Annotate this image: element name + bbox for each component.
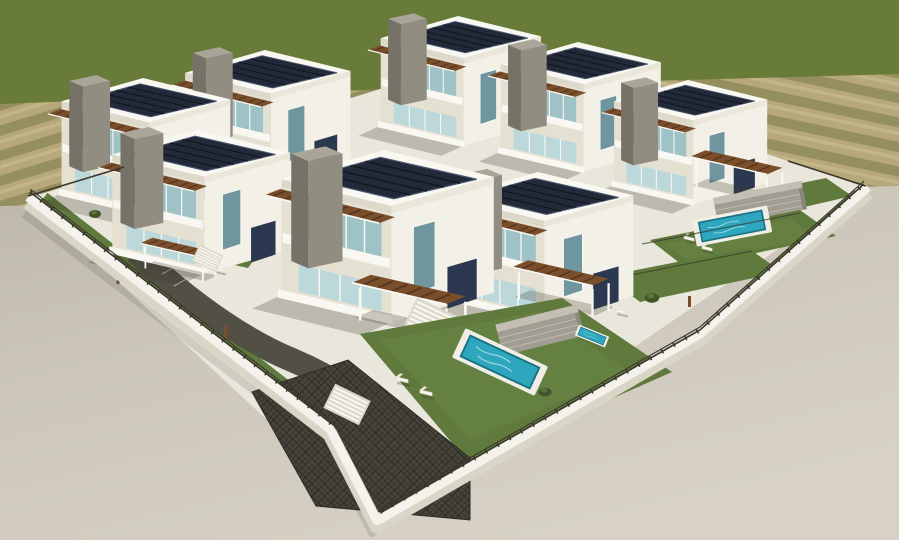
render-canvas: Aerial 3D architectural rendering of a m… — [0, 0, 899, 540]
shrub — [538, 388, 551, 397]
shrub — [89, 210, 101, 218]
shrub — [645, 293, 659, 303]
architectural-render: Aerial 3D architectural rendering of a m… — [0, 0, 899, 540]
